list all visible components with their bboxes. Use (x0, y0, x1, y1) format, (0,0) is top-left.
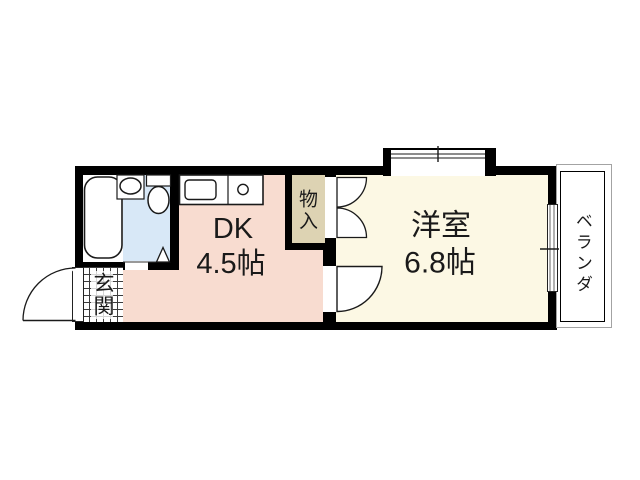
sliding-window-opening (548, 205, 557, 291)
washroom-floor (123, 175, 170, 262)
storage-label: 物入 (296, 189, 316, 233)
western-room-name: 洋室 (411, 210, 471, 242)
western-room-area: 6.8帖 (404, 247, 476, 279)
floor-plan: DK 4.5帖 洋室 6.8帖 物入 玄関 ベランダ (0, 0, 640, 480)
entrance-door-arc (23, 268, 76, 321)
dk-room-area: 4.5帖 (196, 249, 265, 279)
veranda-label: ベランダ (573, 212, 591, 296)
storage-door-opening (325, 177, 337, 238)
entrance-door-opening (73, 268, 83, 321)
washroom-door-opening (125, 261, 148, 270)
room-door-opening (323, 266, 337, 312)
dk-room-name: DK (213, 214, 253, 244)
entrance-label: 玄関 (91, 271, 113, 319)
bay-window-glass (391, 150, 485, 176)
